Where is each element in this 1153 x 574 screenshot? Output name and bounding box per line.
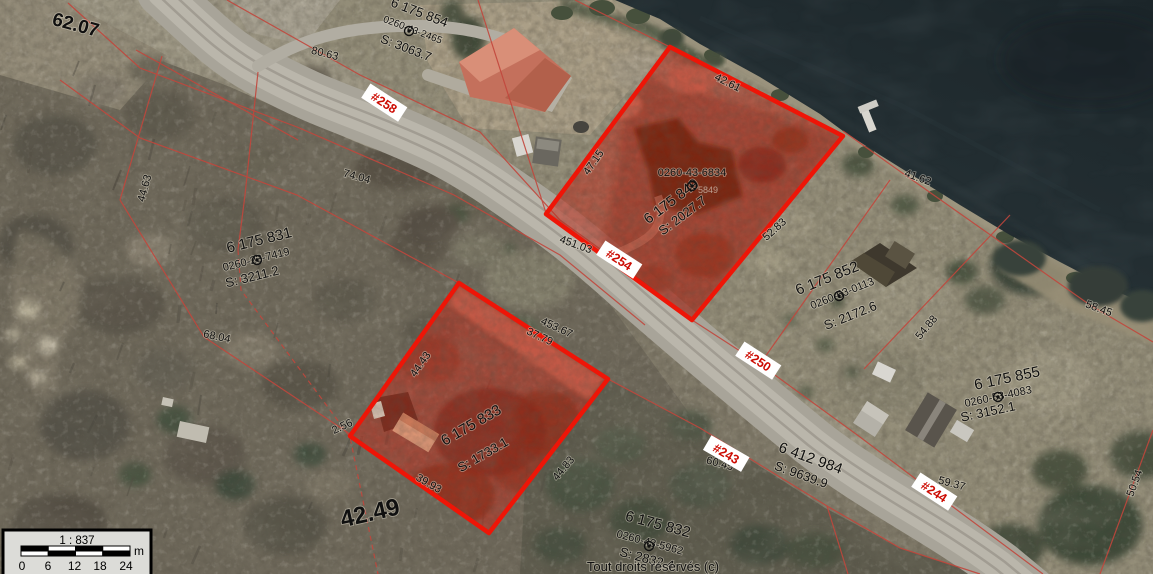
svg-text:0: 0 [19,559,26,573]
svg-text:24: 24 [119,559,133,573]
svg-text:6: 6 [45,559,52,573]
svg-text:Tout droits réservés (c): Tout droits réservés (c) [587,559,719,574]
svg-text:18: 18 [93,559,107,573]
svg-text:1 : 837: 1 : 837 [59,535,94,547]
svg-text:m: m [134,544,144,558]
svg-text:12: 12 [68,559,82,573]
svg-text:5849: 5849 [698,185,718,195]
